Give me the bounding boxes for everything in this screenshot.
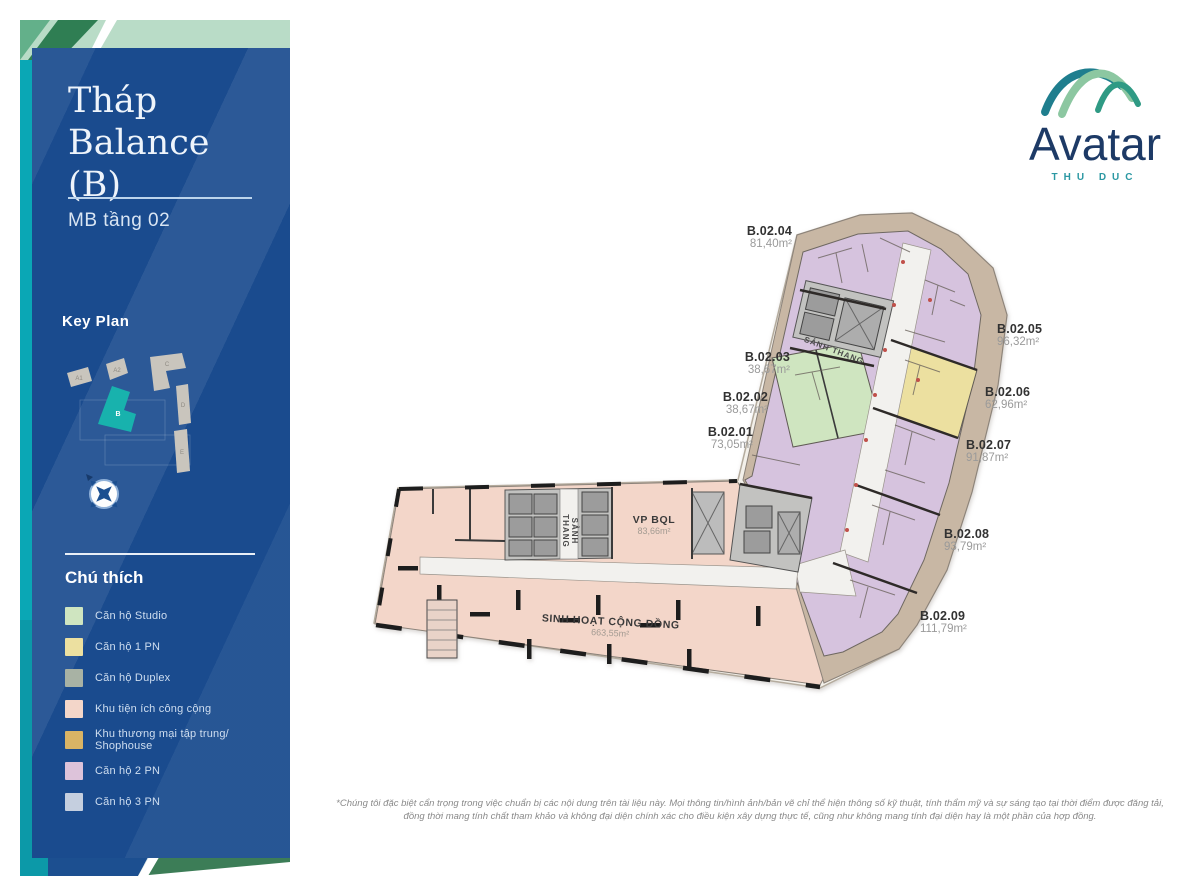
- unit-label-b0207: B.02.0791,87m²: [966, 438, 1011, 466]
- legend-divider: [65, 553, 255, 555]
- unit-label-b0205: B.02.0596,32m²: [997, 322, 1042, 350]
- legend-item: Căn hộ 3 PN: [65, 786, 275, 817]
- unit-label-b0209: B.02.09111,79m²: [920, 609, 967, 637]
- stair-room: [427, 600, 457, 658]
- unit-label-b0208: B.02.0893,79m²: [944, 527, 989, 555]
- title-underline: [68, 197, 252, 199]
- unit-label-b0202: B.02.0238,67m²: [723, 390, 768, 418]
- compass-icon: [82, 472, 126, 516]
- room-label-lobby-lower: SẢNH THANG: [561, 500, 579, 562]
- unit-label-b0204: B.02.0481,40m²: [747, 224, 792, 252]
- core-lower: [505, 488, 612, 560]
- brand-logo: Avatar THU DUC: [1000, 64, 1190, 199]
- legend-swatch-2pn: [65, 762, 83, 780]
- logo-sub-text: THU DUC: [1052, 172, 1139, 183]
- svg-text:A1: A1: [75, 376, 83, 382]
- legend-title: Chú thích: [65, 568, 143, 588]
- legend-item: Căn hộ Studio: [65, 600, 275, 631]
- logo-arcs-icon: Avatar THU DUC: [1000, 64, 1190, 199]
- svg-text:B: B: [115, 411, 120, 418]
- keyplan-title: Key Plan: [62, 313, 129, 330]
- disclaimer-text: *Chúng tôi đặc biệt cẩn trọng trong việc…: [335, 797, 1165, 824]
- legend-swatch-studio: [65, 607, 83, 625]
- legend-swatch-shophouse: [65, 731, 83, 749]
- legend-swatch-1pn: [65, 638, 83, 656]
- svg-text:A2: A2: [113, 368, 121, 374]
- keyplan-building-b: [98, 386, 136, 432]
- legend-swatch-public: [65, 700, 83, 718]
- brochure-page: Tháp Balance (B) MB tầng 02 Key Plan A1 …: [0, 0, 1200, 896]
- unit-label-b0201: B.02.0173,05m²: [708, 425, 753, 453]
- floor-subtitle: MB tầng 02: [68, 210, 170, 232]
- legend-item: Căn hộ 1 PN: [65, 631, 275, 662]
- core-junction: [730, 484, 812, 572]
- legend-list: Căn hộ Studio Căn hộ 1 PN Căn hộ Duplex …: [65, 600, 275, 817]
- legend-item: Khu tiện ích công cộng: [65, 693, 275, 724]
- legend-item: Khu thương mại tập trung/ Shophouse: [65, 724, 275, 755]
- legend-item: Căn hộ Duplex: [65, 662, 275, 693]
- keyplan-map: A1 A2 B C D E: [50, 340, 240, 490]
- core-stairs: [692, 492, 724, 554]
- unit-label-b0203: B.02.0338,67m²: [745, 350, 790, 378]
- legend-swatch-duplex: [65, 669, 83, 687]
- legend-item: Căn hộ 2 PN: [65, 755, 275, 786]
- tower-title: Tháp Balance (B): [68, 80, 268, 206]
- legend-swatch-3pn: [65, 793, 83, 811]
- north-arrow-icon: [86, 474, 93, 481]
- logo-brand-text: Avatar: [1029, 118, 1161, 170]
- room-label-office: VP BQL 83,66m²: [612, 514, 696, 536]
- svg-text:C: C: [165, 362, 170, 368]
- sidebar: Tháp Balance (B) MB tầng 02 Key Plan A1 …: [20, 10, 290, 876]
- svg-text:E: E: [180, 450, 184, 456]
- svg-text:D: D: [181, 403, 186, 409]
- unit-label-b0206: B.02.0662,96m²: [985, 385, 1030, 413]
